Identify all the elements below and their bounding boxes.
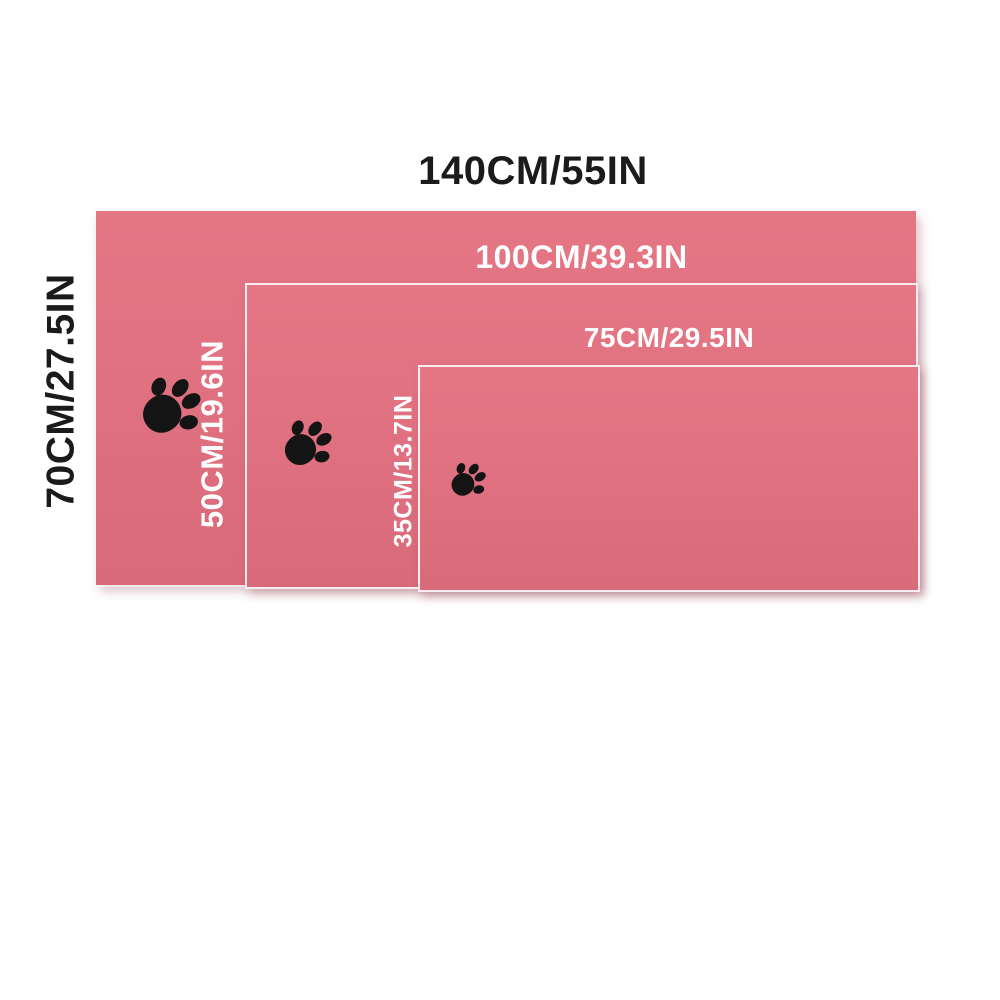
paw-print-icon bbox=[445, 459, 489, 503]
large-width-label: 140CM/55IN bbox=[123, 151, 943, 191]
blanket-small bbox=[418, 365, 920, 592]
small-height-label: 35CM/13.7IN bbox=[392, 395, 417, 548]
paw-print-icon bbox=[276, 415, 336, 475]
large-height-label: 70CM/27.5IN bbox=[42, 273, 81, 508]
medium-width-label: 100CM/39.3IN bbox=[245, 241, 918, 273]
paw-print-icon bbox=[132, 371, 206, 445]
small-width-label: 75CM/29.5IN bbox=[418, 324, 920, 352]
size-comparison-diagram: 140CM/55IN 100CM/39.3IN 75CM/29.5IN 70CM… bbox=[0, 0, 1000, 1000]
